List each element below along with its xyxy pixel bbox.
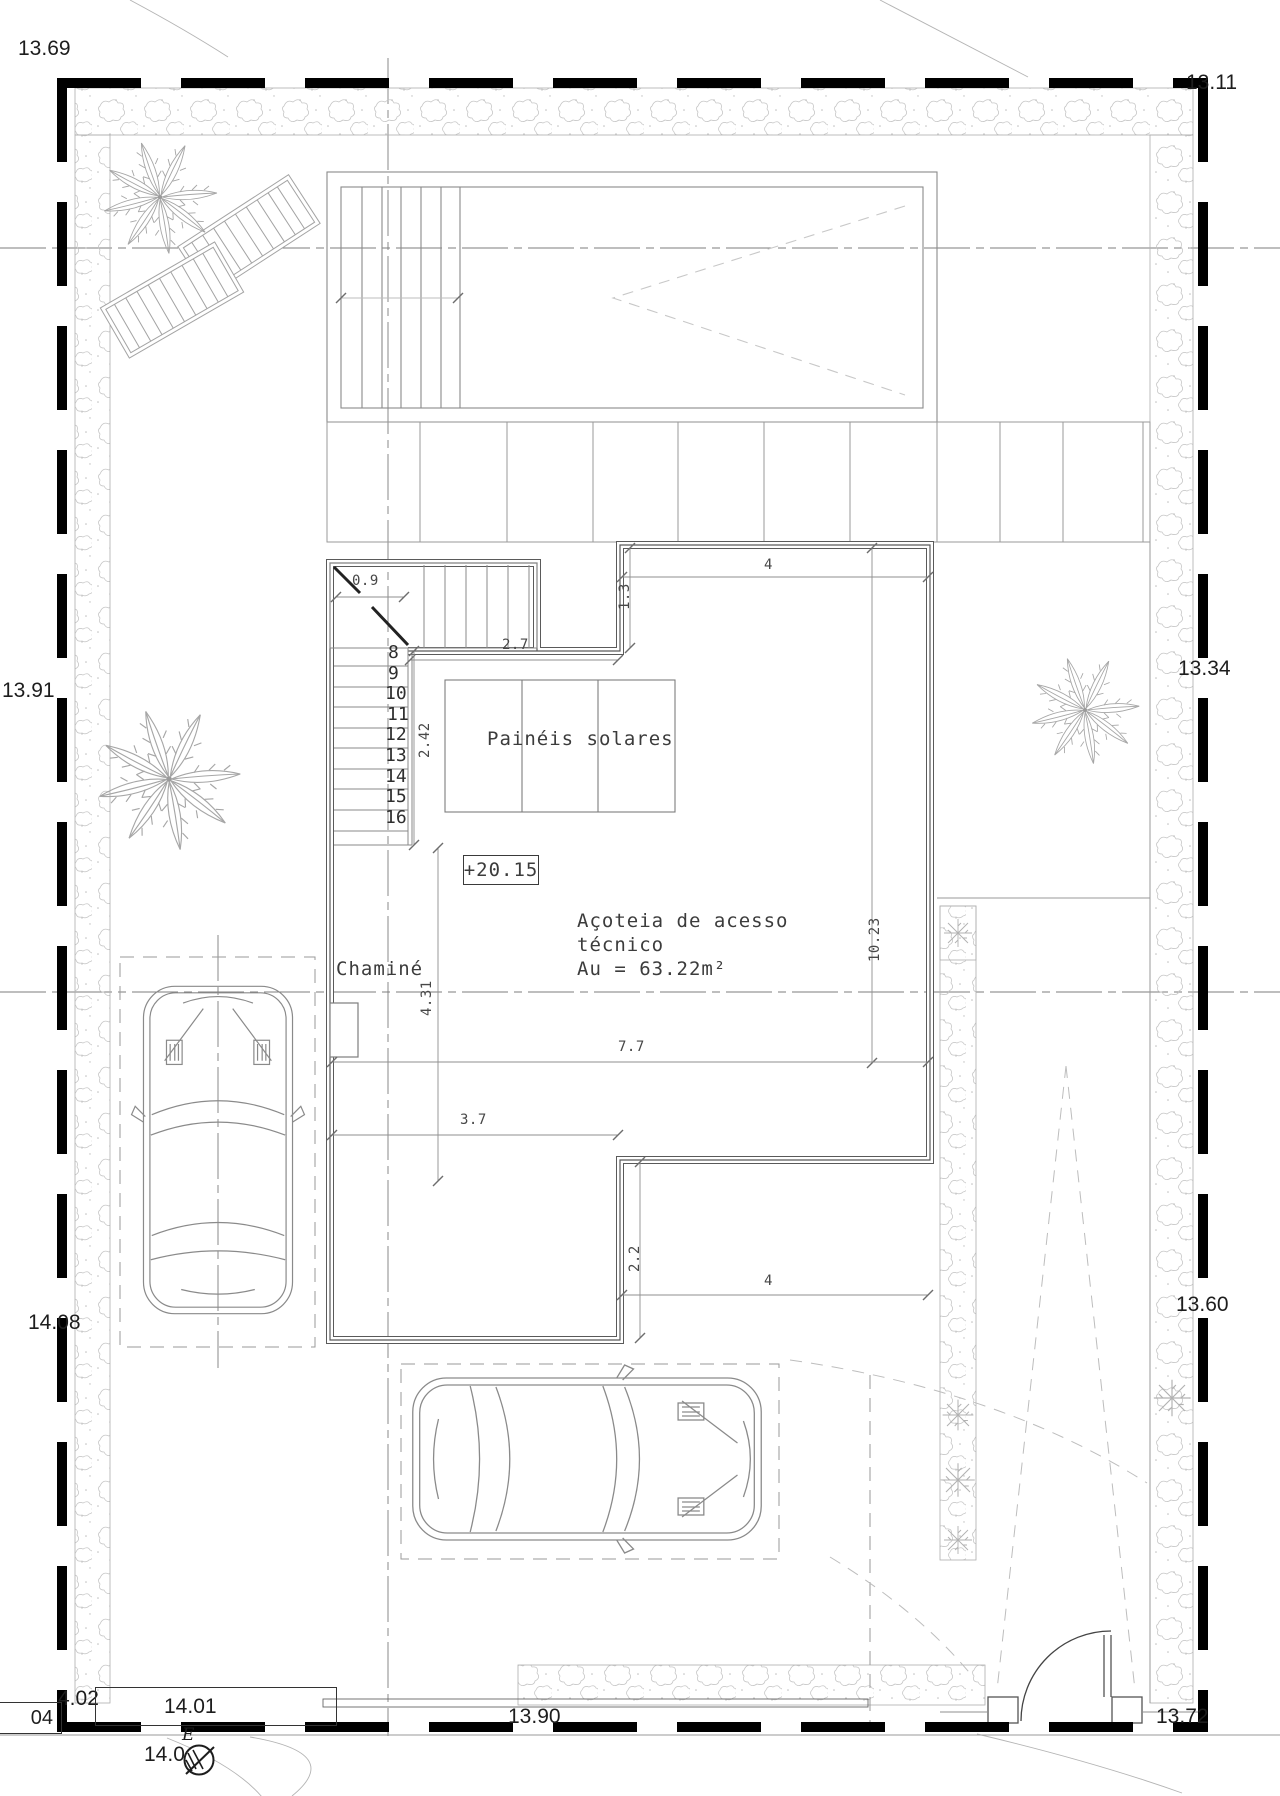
solar-panels-label: Painéis solares	[487, 730, 674, 749]
spot-elevation-east: 13.34	[1178, 658, 1231, 679]
sun-loungers	[100, 175, 320, 358]
stair-number: 12	[385, 726, 407, 744]
chimney-outline	[330, 1003, 358, 1057]
dim-stair-run-top: 2.7	[502, 638, 529, 652]
stair-number: 14	[385, 768, 407, 786]
dim-roof-top-width: 4	[764, 558, 773, 572]
spot-elevation-bottom-center: 13.90	[508, 1706, 561, 1727]
dim-parapet-jog: 1.3	[618, 583, 632, 610]
chimney-label: Chaminé	[336, 960, 423, 979]
spot-elevation-east-lower: 13.60	[1176, 1294, 1229, 1315]
stair-number: 13	[385, 747, 407, 765]
stair-number: 11	[387, 706, 409, 724]
stair-number: 9	[388, 665, 399, 683]
dim-block-depth: 2.2	[628, 1245, 642, 1272]
terrace-label-line1: Açoteia de acesso	[577, 912, 788, 931]
dim-west-wall: 4.31	[420, 980, 434, 1016]
roof-slab-band	[327, 422, 1150, 1703]
dim-stair-landing: 0.9	[352, 574, 379, 588]
level-marker: +20.15	[463, 855, 539, 885]
spot-elevation-west: 13.91	[2, 680, 55, 701]
property-boundary	[57, 78, 1208, 1727]
stair-number: 10	[385, 685, 407, 703]
dim-east-parapet: 10.23	[868, 917, 882, 962]
survey-marker-icon	[185, 1746, 215, 1775]
spot-elevation-bottom-right: 13.72	[1156, 1706, 1209, 1727]
terrace-area-label: Au = 63.22m²	[577, 960, 726, 979]
edge-elevation-box: 04	[0, 1702, 62, 1734]
stair-number: 15	[385, 788, 407, 806]
bench-elevation-value: 14.01	[164, 1696, 217, 1717]
dim-roof-bottom-width: 4	[764, 1274, 773, 1288]
spot-elevation-top-left: 13.69	[18, 38, 71, 59]
spot-elevation-west-lower: 14.08	[28, 1312, 81, 1333]
stair-number: 16	[385, 809, 407, 827]
survey-letter: E	[182, 1727, 194, 1744]
stair-number: 8	[388, 644, 399, 662]
dim-block-width: 3.7	[460, 1113, 487, 1127]
survey-value: 14.0	[144, 1744, 185, 1765]
site-plan-linework	[0, 0, 1280, 1796]
dim-roof-width: 7.7	[618, 1040, 645, 1054]
bench-elevation-box: 14.01	[95, 1687, 337, 1726]
stair-tower-roof	[327, 172, 937, 422]
spot-elevation-bottom-left: 4.02	[58, 1688, 99, 1709]
car-top-view-bottom	[413, 1365, 761, 1553]
dim-stair-flight: 2.42	[418, 722, 432, 758]
floor-plan-sheet: 13.69 13.11 13.91 13.34 14.08 13.60 13.9…	[0, 0, 1280, 1796]
terrace-label-line2: técnico	[577, 936, 664, 955]
roof-access-stairs	[330, 563, 537, 845]
vegetation-bands	[75, 88, 1193, 1705]
spot-elevation-top-right: 13.11	[1186, 72, 1237, 93]
